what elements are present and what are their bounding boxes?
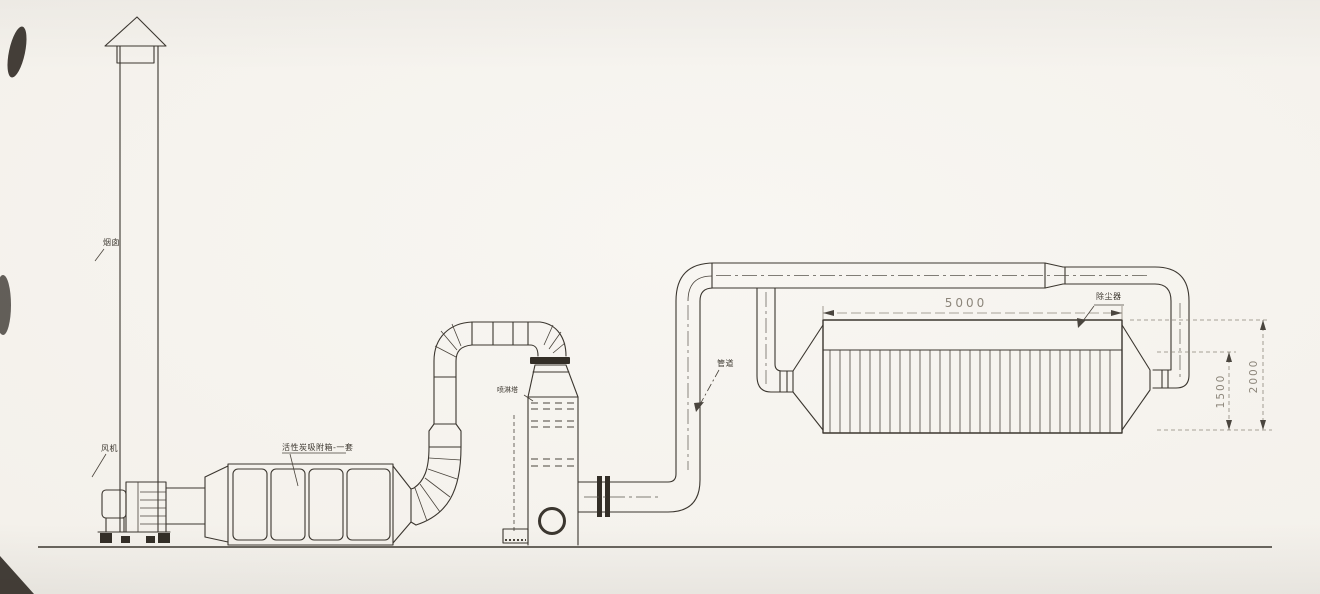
label-dust-collector: 除尘器	[1077, 291, 1124, 328]
dust-collector	[793, 320, 1150, 433]
engineering-drawing-photo: 5000 1500 2000 烟囱 风机 活性炭吸附箱-一套 喷淋塔 管道	[0, 0, 1320, 594]
fan-outlet-transition	[166, 466, 228, 542]
dimension-collector-total-height: 2000	[1130, 320, 1268, 430]
dimension-collector-length: 5000	[823, 296, 1122, 319]
spray-tower-label-text: 喷淋塔	[497, 385, 518, 394]
dim-1500-text: 1500	[1215, 374, 1227, 409]
duct-label-text: 管道	[717, 358, 734, 368]
dust-collector-label-text: 除尘器	[1096, 291, 1122, 301]
manhole-icon	[540, 509, 565, 534]
exhaust-treatment-system-diagram: 5000 1500 2000 烟囱 风机 活性炭吸附箱-一套 喷淋塔 管道	[0, 0, 1320, 594]
carbon-adsorption-box	[228, 464, 411, 545]
collector-inlet-drop-pipe	[757, 288, 793, 392]
riser-duct	[668, 263, 714, 512]
dim-2000-text: 2000	[1248, 359, 1260, 394]
segmented-duct-scrubber-inlet	[411, 322, 570, 525]
main-overhead-duct	[712, 263, 1189, 388]
fan	[98, 482, 170, 543]
fan-label-text: 风机	[101, 443, 118, 453]
label-fan: 风机	[92, 443, 118, 477]
dim-5000-text: 5000	[945, 296, 988, 310]
photo-edge-smudges	[0, 25, 34, 594]
scrubber-inlet-duct	[578, 476, 668, 517]
chimney-label-text: 烟囱	[103, 237, 120, 247]
label-chimney: 烟囱	[95, 237, 120, 261]
filter-bag-ribs	[830, 350, 1110, 433]
carbon-box-label-text: 活性炭吸附箱-一套	[282, 442, 353, 452]
chimney	[105, 17, 166, 532]
